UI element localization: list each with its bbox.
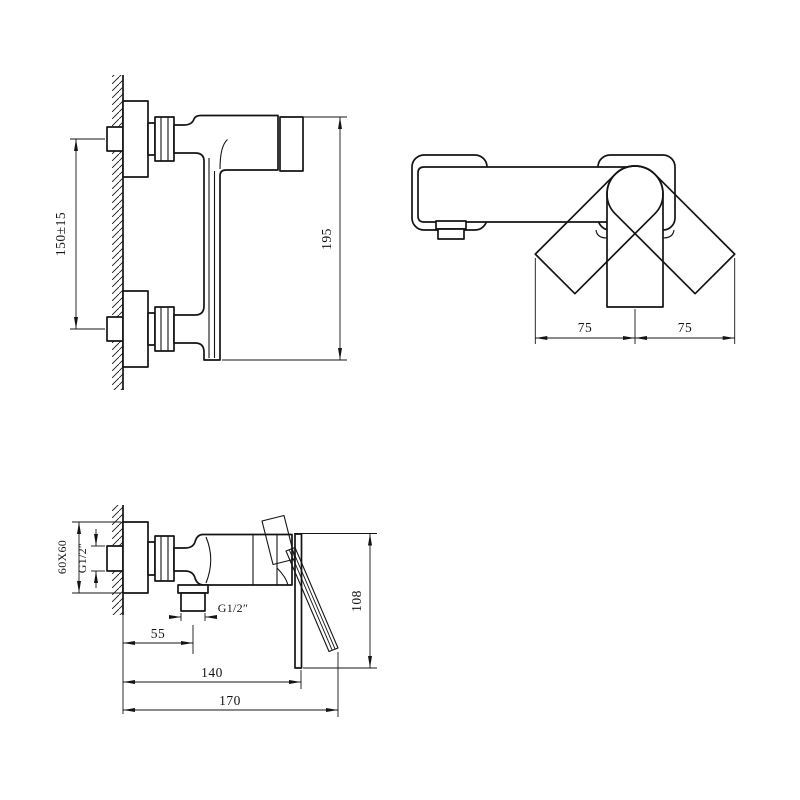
dim-body-depth: 140 bbox=[123, 615, 301, 714]
dim-body-depth-label: 140 bbox=[201, 665, 223, 680]
front-view: 75 75 bbox=[412, 154, 735, 344]
faucet-technical-drawing: 150±15 195 75 bbox=[0, 0, 800, 800]
dim-inlet-spacing-label: 150±15 bbox=[53, 212, 68, 256]
supply-pipe-bottom bbox=[107, 317, 123, 341]
dim-inlet-thread-label: G1/2″ bbox=[75, 543, 89, 574]
dim-outlet-offset: 55 bbox=[123, 625, 193, 654]
dim-outlet-offset-label: 55 bbox=[151, 626, 166, 641]
pivot-collar-right-arc bbox=[663, 230, 674, 238]
dim-outlet-thread-label: G1/2″ bbox=[218, 601, 249, 615]
technical-drawing-page: 150±15 195 75 bbox=[0, 0, 800, 800]
plan-view: 60X60 G1/2″ G1/2″ 55 140 bbox=[55, 505, 377, 717]
side-view: 150±15 195 bbox=[53, 75, 347, 390]
dim-plan-height-label: 108 bbox=[349, 590, 364, 612]
dim-overall-height-label: 195 bbox=[319, 228, 334, 250]
escutcheon-top bbox=[123, 101, 148, 177]
faucet-body-side bbox=[174, 116, 278, 361]
handle-upright bbox=[607, 166, 663, 307]
dim-inlet-spacing: 150±15 bbox=[53, 139, 105, 329]
union-nut-bottom bbox=[148, 307, 174, 351]
outlet-collar-front bbox=[436, 221, 466, 229]
union-nut-plan bbox=[148, 536, 174, 581]
pivot-collar-left-arc bbox=[596, 230, 607, 238]
dim-swing-right-label: 75 bbox=[678, 320, 693, 335]
outlet-spigot-front bbox=[438, 229, 464, 239]
escutcheon-plan bbox=[123, 522, 148, 593]
supply-pipe-plan bbox=[107, 546, 123, 571]
dim-overall-depth-label: 170 bbox=[219, 693, 241, 708]
dim-inlet-thread: G1/2″ bbox=[75, 529, 105, 588]
outlet-collar-plan bbox=[178, 585, 208, 593]
handle-open-lever bbox=[286, 548, 338, 652]
dim-overall-depth: 170 bbox=[123, 652, 338, 717]
outlet-spigot-plan bbox=[181, 593, 205, 611]
supply-pipe-top bbox=[107, 127, 123, 151]
wall-hatch bbox=[112, 75, 123, 390]
dim-escutcheon-label: 60X60 bbox=[55, 540, 69, 574]
spout-end-cap bbox=[280, 117, 303, 171]
union-nut-top bbox=[148, 117, 174, 161]
faucet-body-plan bbox=[174, 535, 292, 586]
escutcheon-bottom bbox=[123, 291, 148, 367]
dim-swing-left-label: 75 bbox=[578, 320, 593, 335]
dim-plan-height: 108 bbox=[294, 534, 377, 669]
